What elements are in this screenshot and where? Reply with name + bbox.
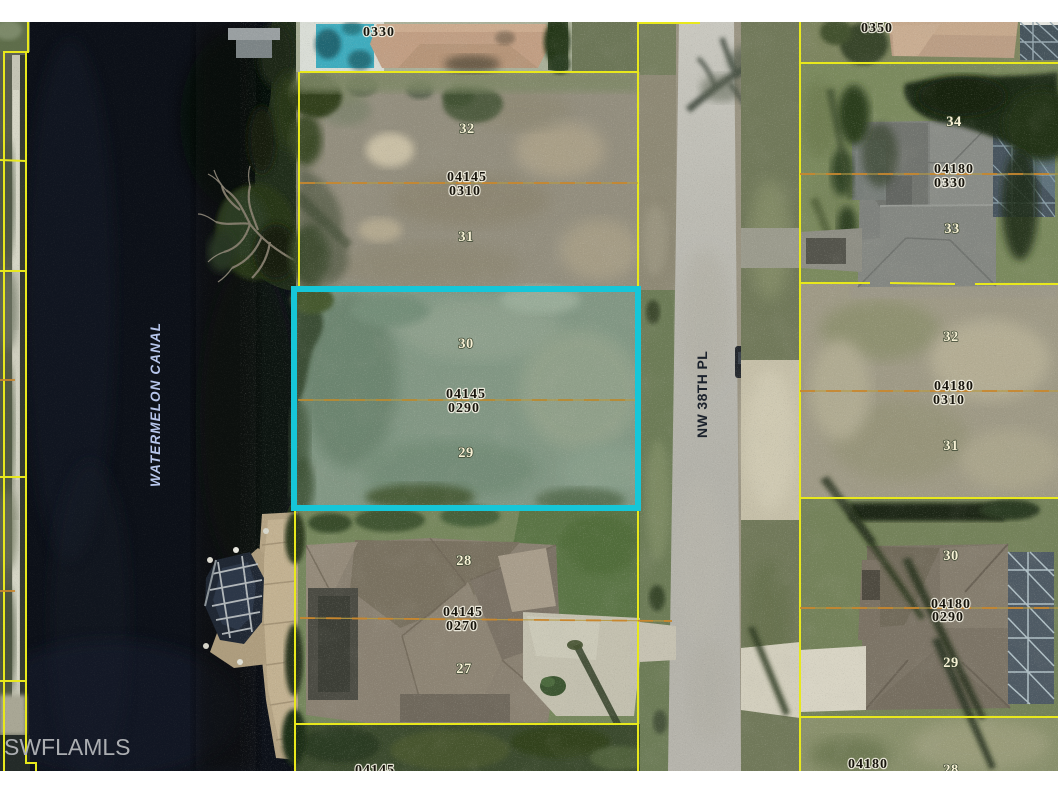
svg-text:31: 31 xyxy=(943,438,959,454)
svg-text:04145: 04145 xyxy=(443,605,483,620)
svg-text:0330: 0330 xyxy=(934,176,966,191)
svg-text:04145: 04145 xyxy=(446,387,486,402)
svg-text:0310: 0310 xyxy=(933,393,965,408)
svg-text:29: 29 xyxy=(943,655,959,671)
svg-text:04180: 04180 xyxy=(934,379,974,394)
svg-text:0350: 0350 xyxy=(861,21,893,36)
svg-text:0330: 0330 xyxy=(363,25,395,40)
svg-text:NW 38TH PL: NW 38TH PL xyxy=(694,351,710,438)
svg-text:0270: 0270 xyxy=(446,619,478,634)
svg-text:29: 29 xyxy=(458,445,474,461)
svg-text:32: 32 xyxy=(943,329,959,345)
svg-text:0290: 0290 xyxy=(448,401,480,416)
svg-text:30: 30 xyxy=(943,548,959,564)
svg-text:WATERMELON CANAL: WATERMELON CANAL xyxy=(148,322,163,487)
svg-text:27: 27 xyxy=(456,661,472,677)
svg-text:04180: 04180 xyxy=(848,757,888,772)
svg-text:SWFLAMLS: SWFLAMLS xyxy=(4,734,131,760)
svg-text:31: 31 xyxy=(458,229,474,245)
svg-text:30: 30 xyxy=(458,336,474,352)
svg-text:0290: 0290 xyxy=(932,610,964,625)
svg-text:33: 33 xyxy=(944,221,960,237)
svg-text:0310: 0310 xyxy=(449,184,481,199)
svg-text:04180: 04180 xyxy=(934,162,974,177)
svg-text:28: 28 xyxy=(456,553,472,569)
svg-text:34: 34 xyxy=(946,114,962,130)
svg-text:04145: 04145 xyxy=(447,170,487,185)
svg-text:32: 32 xyxy=(459,121,475,137)
